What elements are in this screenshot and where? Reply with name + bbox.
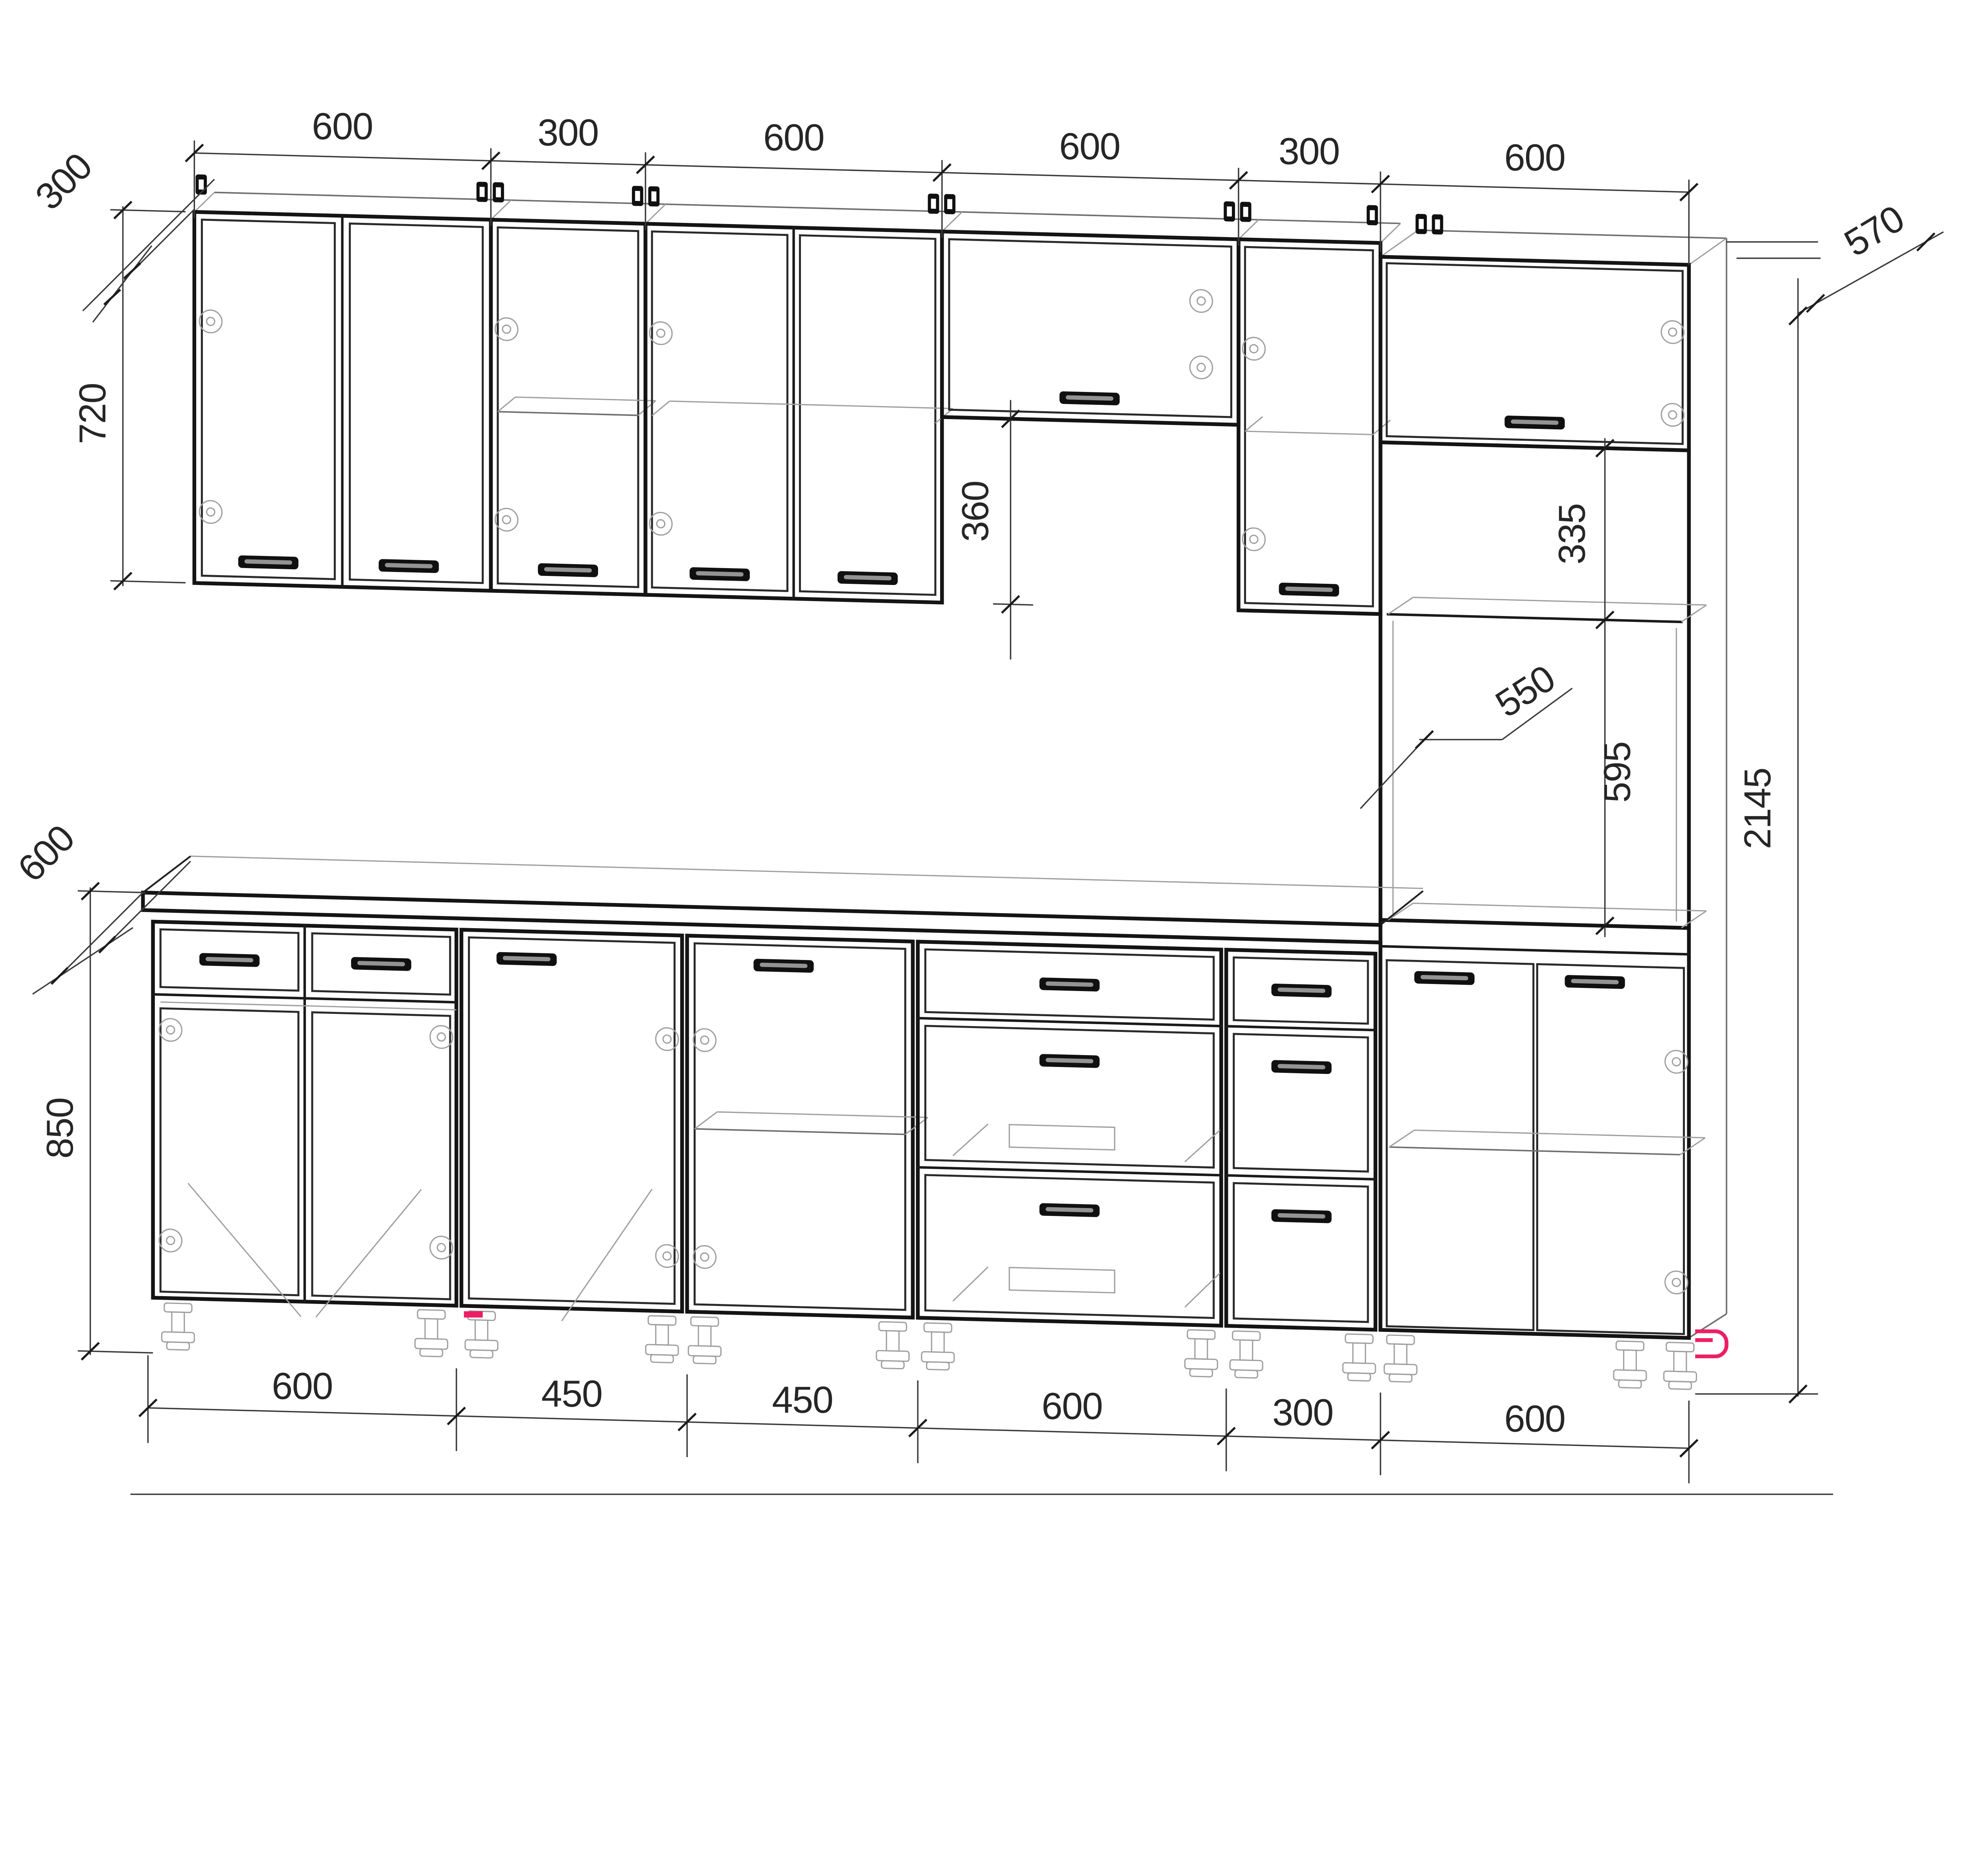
hinge-icon (1661, 320, 1684, 344)
drawer-handle (351, 957, 411, 971)
base-cabinet-600-doors (153, 921, 457, 1321)
base-cabinet-row (153, 921, 1696, 1389)
dim-bottom-2: 450 (541, 1373, 602, 1415)
dim-bottom-6: 600 (1504, 1398, 1565, 1440)
dim-tall-depth-label: 570 (1837, 197, 1911, 265)
dim-line-360 (993, 399, 1033, 660)
dimension-lines (78, 138, 1698, 1484)
door-handle (1279, 583, 1339, 597)
base-cabinet-450-door-2 (687, 936, 928, 1318)
base-cabinet-300-drawers (1226, 950, 1375, 1330)
dim-wall-depth-label: 300 (27, 145, 100, 218)
dim-top-6: 600 (1504, 137, 1565, 179)
hinge-icon (693, 1028, 716, 1052)
dim-top-1: 600 (312, 105, 373, 147)
kitchen-cabinet-dimension-drawing: 600 300 600 600 300 600 600 450 450 600 … (0, 0, 1966, 1608)
elevation-drawing-canvas: 600 300 600 600 300 600 600 450 450 600 … (0, 0, 1966, 1608)
dim-hood-gap-label: 360 (954, 481, 996, 542)
dim-wall-height-label: 720 (72, 383, 114, 444)
wall-cabinet-600-double-2 (646, 224, 953, 603)
dim-tall-depth (1736, 232, 1943, 313)
drawer-handle (1271, 984, 1331, 998)
tall-cabinet-600 (1381, 213, 1727, 1339)
pink-marker-plinth (464, 1311, 483, 1317)
base-cabinet-450-door (461, 930, 682, 1324)
dim-base-height-label: 850 (39, 1098, 81, 1159)
dim-top-4: 600 (1059, 125, 1120, 167)
dim-line-720 (110, 206, 186, 588)
door-handle (497, 952, 557, 966)
hinge-icon (1190, 289, 1212, 313)
dim-bottom-4: 600 (1042, 1385, 1103, 1427)
dim-bottom-5: 300 (1272, 1392, 1333, 1434)
drawer-handle (1039, 1203, 1099, 1217)
door-handle (1505, 416, 1565, 430)
dim-bottom-1: 600 (272, 1365, 333, 1407)
dim-top-5: 300 (1279, 131, 1340, 173)
adjustable-feet (162, 1303, 1696, 1389)
drawer-handle (1039, 1054, 1099, 1068)
door-handle (838, 571, 898, 585)
drawer-handle (199, 953, 260, 967)
hinge-icon (159, 1229, 182, 1252)
hinge-icon (159, 1018, 182, 1041)
dim-bottom-3: 450 (772, 1379, 833, 1421)
dim-tall-oven-label: 595 (1596, 742, 1638, 803)
drawer-handle (1039, 977, 1099, 991)
hinge-icon (1190, 356, 1212, 379)
drawer-handle (1271, 1060, 1331, 1074)
door-handle (1414, 971, 1474, 985)
door-handle (1565, 975, 1625, 989)
wall-cabinet-600-double (194, 212, 491, 591)
cabinet-line-art (78, 138, 1727, 1484)
dim-total-height-label: 2145 (1737, 768, 1779, 849)
dim-top-2: 300 (538, 112, 598, 154)
dim-base-depth-label: 600 (10, 817, 83, 890)
dimension-annotations: 600 300 600 600 300 600 600 450 450 600 … (10, 105, 1944, 1494)
hinge-icon (1661, 403, 1684, 427)
door-handle (238, 555, 298, 570)
door-handle (379, 559, 439, 573)
hinge-icon (693, 1245, 716, 1269)
dim-tall-niche-label: 335 (1551, 504, 1593, 565)
wall-cabinet-row (194, 174, 1401, 614)
pink-foot-bracket (1695, 1331, 1727, 1356)
dim-top-3: 600 (763, 117, 824, 159)
wall-cabinet-600-flipup (942, 232, 1239, 425)
door-handle (753, 959, 814, 973)
dim-inner-width-label: 550 (1488, 657, 1562, 725)
door-handle (690, 567, 750, 581)
wall-cabinet-300-2 (1239, 239, 1390, 614)
door-handle (538, 563, 598, 578)
dimension-labels: 600 300 600 600 300 600 600 450 450 600 … (10, 105, 1911, 1440)
door-handle (1060, 391, 1120, 405)
drawer-handle (1271, 1209, 1331, 1223)
base-cabinet-600-drawers (918, 942, 1221, 1326)
wall-cabinet-300 (491, 220, 655, 595)
countertop (143, 855, 1423, 944)
dim-base-depth (33, 861, 191, 994)
